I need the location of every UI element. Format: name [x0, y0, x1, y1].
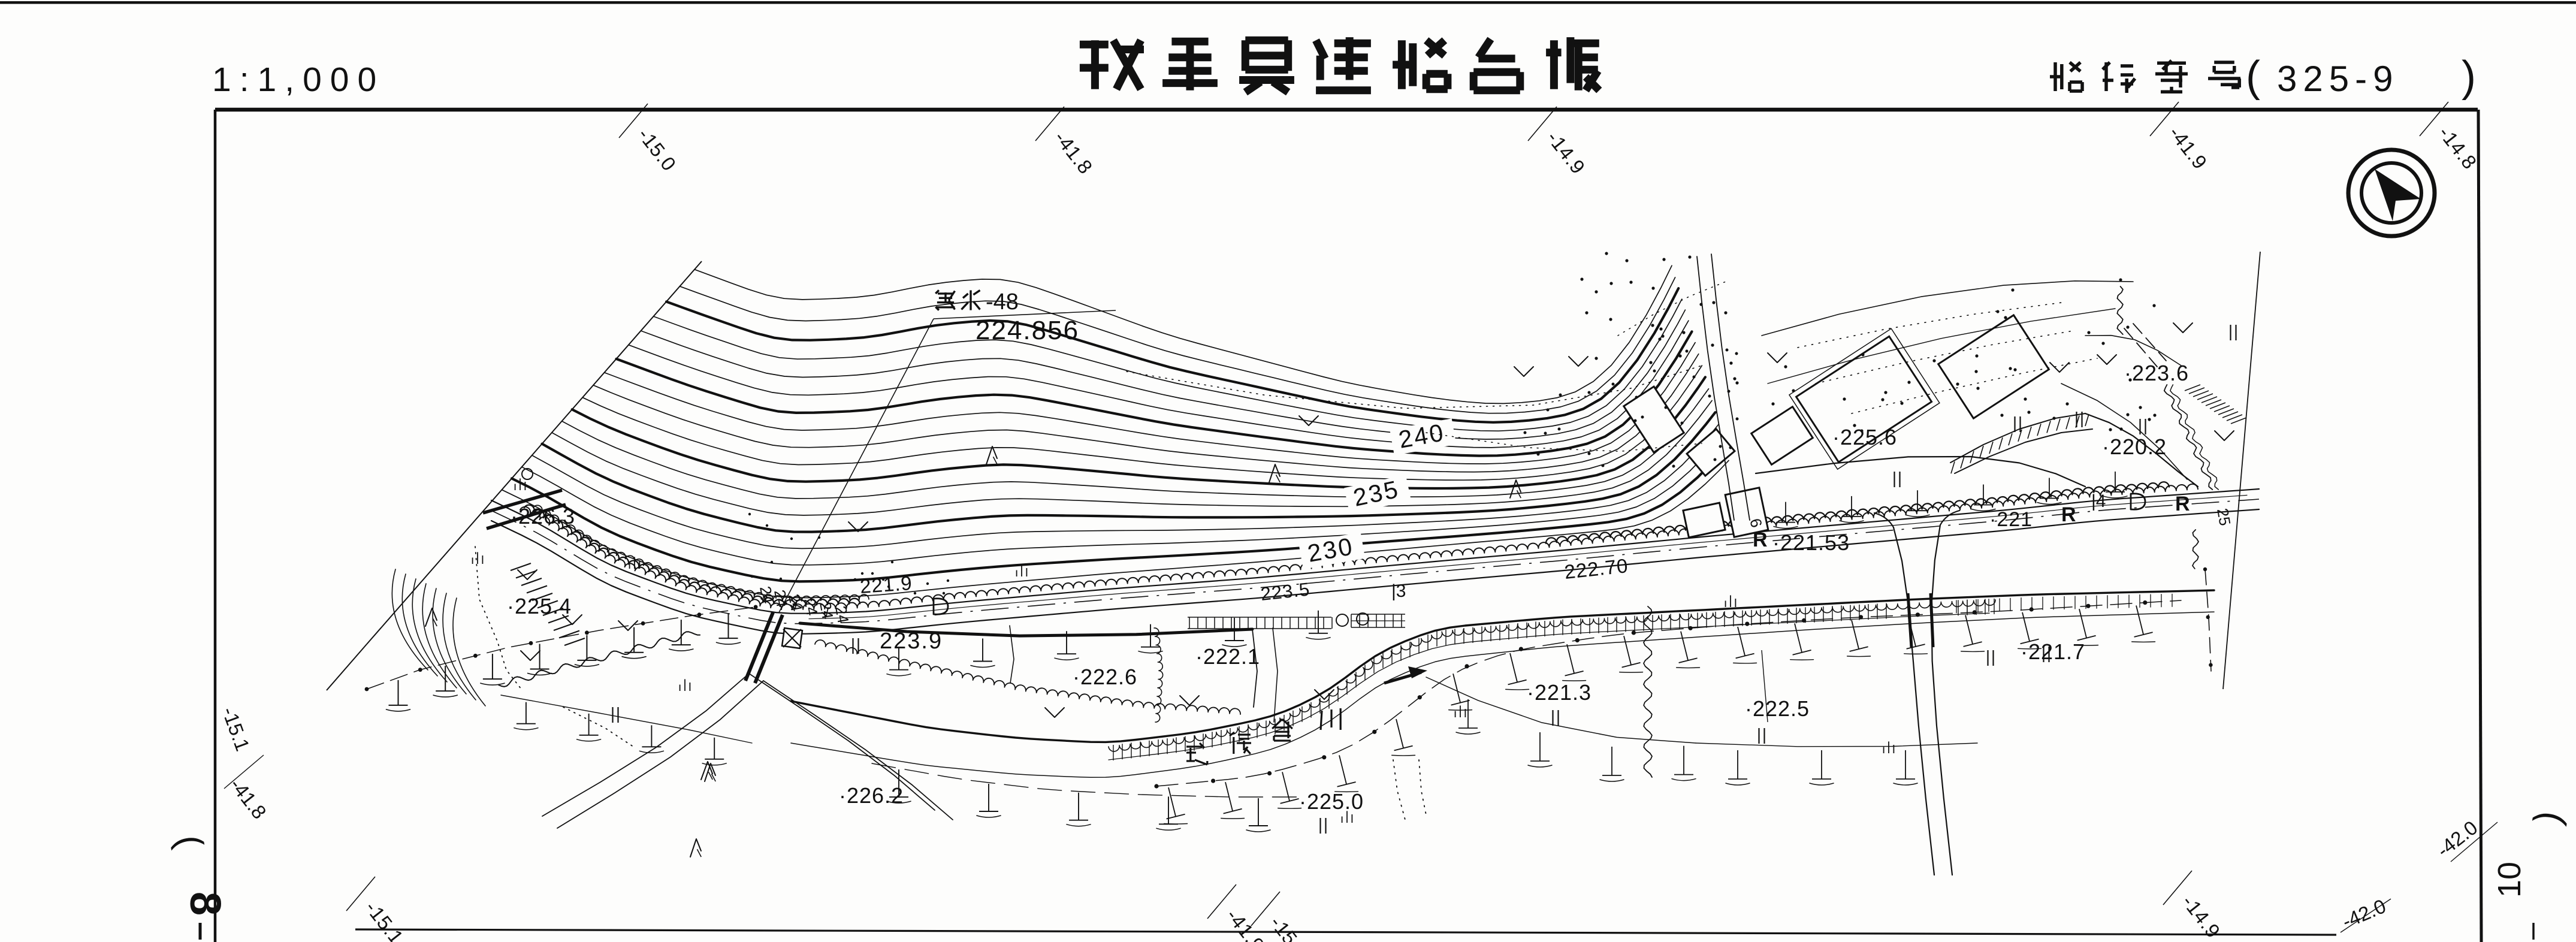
svg-text:221.9: 221.9: [859, 572, 913, 597]
svg-text:1:1,000: 1:1,000: [212, 61, 385, 99]
svg-text:|3: |3: [1391, 581, 1406, 601]
svg-text:-48: -48: [986, 289, 1019, 315]
svg-text:223.9: 223.9: [880, 629, 943, 654]
svg-text:24: 24: [832, 605, 853, 625]
svg-text:·221.7: ·221.7: [2021, 639, 2085, 664]
svg-text:): ): [2462, 53, 2476, 101]
svg-text:·222.6: ·222.6: [1073, 665, 1137, 689]
svg-text:R: R: [2061, 503, 2076, 526]
svg-text:·226.3: ·226.3: [511, 504, 575, 529]
svg-text:25: 25: [2213, 507, 2234, 527]
svg-text:·222.5: ·222.5: [1745, 696, 1810, 721]
svg-text:(: (: [2246, 53, 2260, 101]
svg-text:·225.4: ·225.4: [507, 594, 572, 618]
svg-text:·221.53: ·221.53: [1772, 530, 1850, 555]
svg-text:224.856: 224.856: [976, 316, 1079, 345]
svg-text:R: R: [1753, 529, 1768, 551]
svg-text:·226.2: ·226.2: [839, 783, 904, 808]
svg-text:·225.0: ·225.0: [1299, 789, 1364, 814]
svg-text:·225.6: ·225.6: [1832, 425, 1897, 449]
svg-text:10: 10: [2492, 862, 2527, 898]
svg-text:·222.1: ·222.1: [1195, 644, 1260, 669]
svg-text:·221.3: ·221.3: [1527, 680, 1591, 705]
svg-text:8: 8: [181, 892, 229, 916]
svg-text:325-9: 325-9: [2277, 59, 2399, 99]
svg-text:|4: |4: [2091, 491, 2106, 511]
svg-text:·221: ·221: [1989, 508, 2033, 531]
svg-text:R: R: [2175, 493, 2190, 515]
